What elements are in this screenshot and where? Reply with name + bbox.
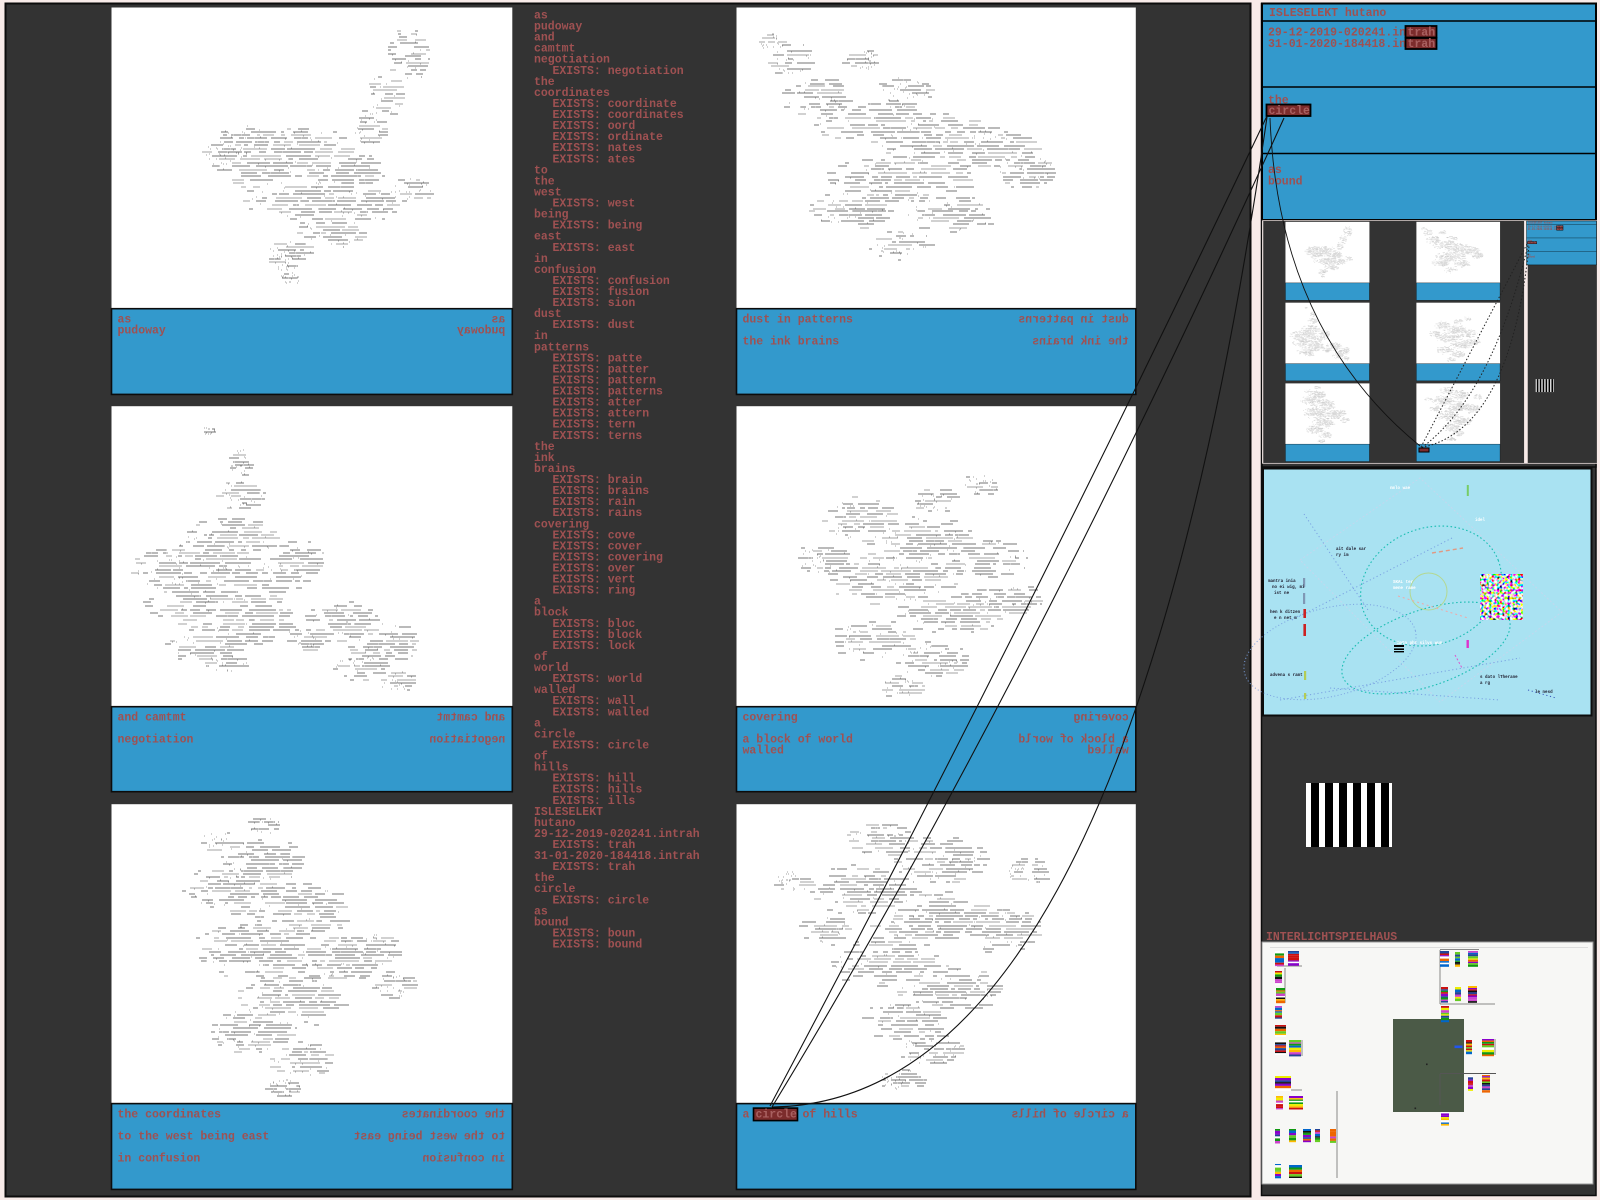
- svg-text:in confusion: in confusion: [422, 1153, 505, 1166]
- svg-text:dust in patterns: dust in patterns: [743, 314, 854, 327]
- svg-text:EXISTS: circle: EXISTS: circle: [553, 894, 650, 907]
- svg-text:covering: covering: [1073, 712, 1128, 725]
- svg-text:and camtmt: and camtmt: [118, 712, 187, 725]
- svg-text:mantra inia: mantra inia: [1268, 579, 1296, 584]
- svg-text:s dato lTherane: s dato lTherane: [1480, 675, 1518, 680]
- svg-text:ait dale sar: ait dale sar: [1336, 547, 1367, 552]
- svg-text:pudoway: pudoway: [457, 325, 505, 338]
- svg-text:ry im: ry im: [1336, 553, 1349, 558]
- svg-text:EXISTS: ring: EXISTS: ring: [553, 585, 636, 598]
- svg-text:negotiation: negotiation: [429, 734, 505, 747]
- svg-text:in confusion: in confusion: [118, 1153, 201, 1166]
- svg-text:the ink brains: the ink brains: [743, 336, 840, 349]
- svg-text:covering: covering: [743, 712, 798, 725]
- svg-text:a circle of hills: a circle of hills: [1011, 1109, 1128, 1122]
- svg-text:and camtmt: and camtmt: [436, 712, 505, 725]
- svg-text:negotiation: negotiation: [118, 734, 194, 747]
- svg-text:pudoway: pudoway: [118, 325, 166, 338]
- svg-text:EXISTS: lock: EXISTS: lock: [553, 640, 636, 653]
- svg-text:hen k ditzen: hen k ditzen: [1270, 610, 1301, 615]
- svg-text:31-01-2020-184418.in: 31-01-2020-184418.in: [1268, 38, 1406, 51]
- svg-text:idel: idel: [1475, 518, 1486, 523]
- svg-text:mene rame: mene rame: [1393, 587, 1416, 591]
- svg-text:EXISTS: being: EXISTS: being: [553, 220, 643, 233]
- svg-text:EXISTS: dust: EXISTS: dust: [553, 319, 636, 332]
- svg-text:SKAL ter: SKAL ter: [1393, 581, 1414, 585]
- svg-text:le nesd: le nesd: [1535, 690, 1553, 695]
- svg-text:EXISTS: trah: EXISTS: trah: [553, 861, 636, 874]
- svg-text:circle: circle: [1269, 105, 1311, 118]
- svg-text:advena s ramt: advena s ramt: [1270, 673, 1303, 678]
- svg-text:of hills: of hills: [803, 1109, 858, 1122]
- svg-text:no ei wig, mi: no ei wig, mi: [1272, 585, 1305, 590]
- svg-text:the ink brains: the ink brains: [1032, 336, 1129, 349]
- svg-text:EXISTS: negotiation: EXISTS: negotiation: [553, 65, 684, 78]
- svg-text:the coordinates: the coordinates: [402, 1109, 506, 1122]
- svg-text:to the west being east: to the west being east: [118, 1131, 270, 1144]
- svg-text:EXISTS: walled: EXISTS: walled: [553, 706, 650, 719]
- svg-text:a: a: [743, 1109, 750, 1122]
- svg-text:trah: trah: [1408, 38, 1436, 51]
- svg-text:walled: walled: [743, 745, 785, 758]
- svg-text:circle: circle: [756, 1109, 798, 1122]
- svg-text:EXISTS: sion: EXISTS: sion: [553, 297, 636, 310]
- svg-text:EXISTS: bound: EXISTS: bound: [553, 939, 643, 952]
- svg-text:e n net m: e n net m: [1274, 617, 1297, 621]
- svg-text:ISLESELEKT hutano: ISLESELEKT hutano: [1269, 7, 1386, 20]
- svg-text:the coordinates: the coordinates: [118, 1109, 222, 1122]
- svg-text:nmlo wae: nmlo wae: [1390, 486, 1411, 491]
- svg-text:EXISTS: circle: EXISTS: circle: [553, 740, 650, 753]
- svg-text:EXISTS: terns: EXISTS: terns: [553, 430, 643, 443]
- svg-text:EXISTS: east: EXISTS: east: [553, 242, 636, 255]
- svg-text:dust in patterns: dust in patterns: [1018, 314, 1129, 327]
- svg-text:EXISTS: ates: EXISTS: ates: [553, 153, 636, 166]
- svg-text:a rg: a rg: [1480, 682, 1491, 686]
- svg-text:ist ne: ist ne: [1274, 591, 1290, 596]
- svg-text:bound: bound: [1268, 175, 1303, 188]
- svg-text:to the west being east: to the west being east: [353, 1131, 505, 1144]
